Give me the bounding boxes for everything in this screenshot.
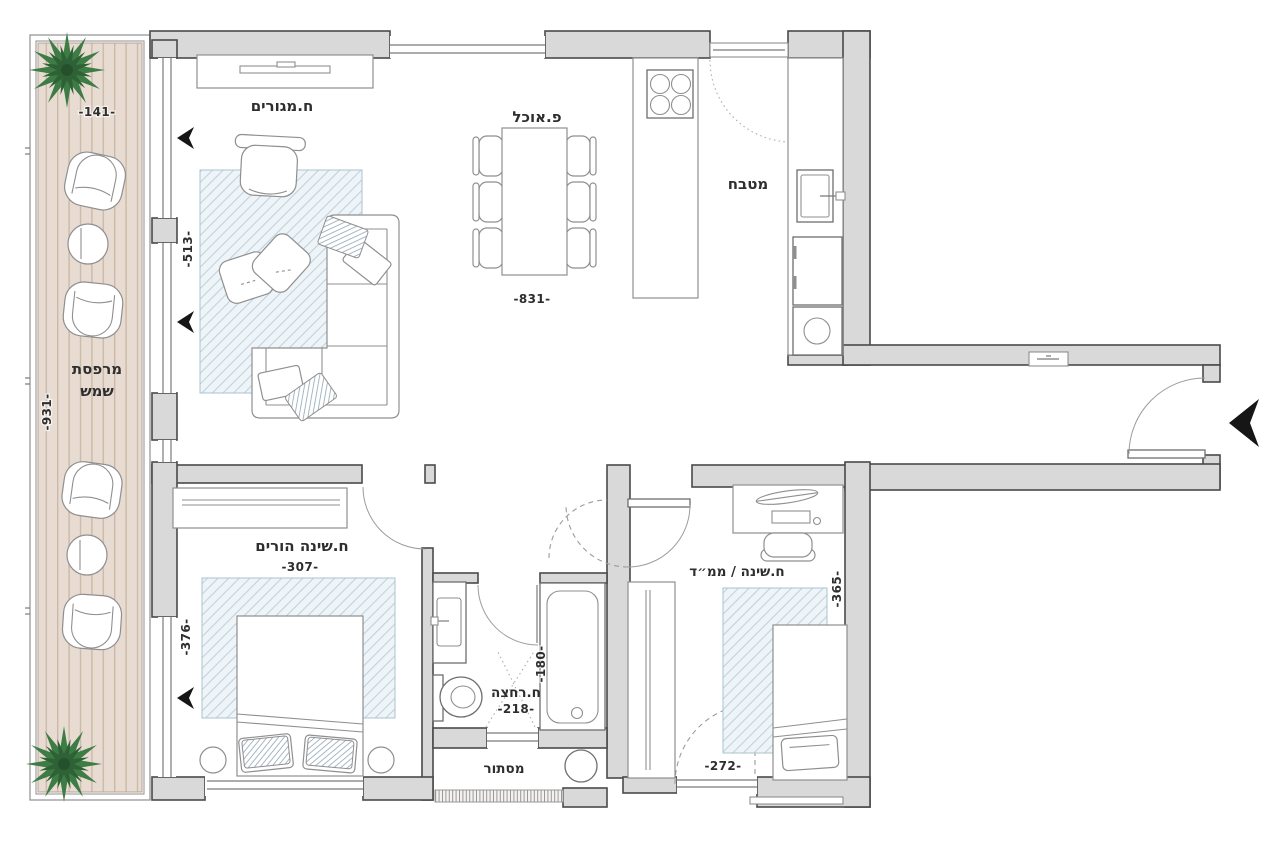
- entrance-door: [1128, 378, 1205, 458]
- washing-machine: [565, 750, 597, 782]
- living-armchair: [233, 134, 306, 198]
- nightstand-left: [200, 747, 226, 773]
- floor-plan-page: ח.מגורים -513- פ.אוכל -831- מטבח -141- מ…: [0, 0, 1267, 847]
- tv-console: [197, 55, 373, 88]
- master-window-arrow-icon: [177, 687, 194, 709]
- kitchen-door-swing: [710, 60, 792, 142]
- safe-room-label: ח.שינה / ממ״ד: [689, 564, 784, 580]
- balcony-table-bottom: [67, 535, 107, 575]
- master-window-dim: -376-: [179, 618, 193, 655]
- kitchen-label: מטבח: [728, 175, 769, 193]
- desk-chair: [761, 533, 815, 561]
- safe-room-wardrobe: [628, 582, 675, 778]
- exterior-sill: [750, 797, 843, 804]
- balcony-opening-arrow-top-icon: [177, 127, 194, 149]
- balcony-wall-ticks: [25, 148, 30, 614]
- hallway-door-swing: [549, 500, 607, 558]
- master-door-swing: [363, 487, 425, 549]
- dishwasher: [793, 237, 842, 305]
- master-width-dim: -307-: [281, 560, 318, 574]
- dining-chair: [566, 136, 596, 176]
- dining-width-dim: -831-: [513, 292, 550, 306]
- single-bed: [773, 625, 847, 780]
- bathroom-label: ח.רחצה: [491, 685, 541, 701]
- corridor-wall-niche: [1029, 352, 1068, 366]
- balcony-length-dim: -931-: [40, 393, 54, 430]
- balcony-label-line2: שמש: [80, 382, 114, 400]
- dining-chair: [566, 228, 596, 268]
- balcony-table-top: [68, 224, 108, 264]
- dining-table: [502, 128, 567, 275]
- cooktop: [647, 70, 693, 118]
- laundry-label: מסתור: [484, 761, 525, 777]
- kitchen-service-door: [710, 43, 788, 57]
- safe-room-width-dim: -272-: [704, 759, 741, 773]
- living-window-dim: -513-: [181, 230, 195, 267]
- vanity-sink: [431, 582, 466, 663]
- safe-room: [628, 485, 847, 804]
- dining-chair: [566, 182, 596, 222]
- safe-room-window: [677, 775, 757, 794]
- laundry-window: [487, 728, 538, 748]
- safe-room-depth-dim: -365-: [830, 570, 844, 607]
- nightstand-right: [368, 747, 394, 773]
- balcony-width-dim: -141-: [78, 105, 115, 119]
- living-top-window: [390, 36, 545, 58]
- bathroom-depth-dim: -180-: [534, 645, 548, 682]
- master-side-window: [158, 617, 176, 777]
- floor-plan-drawing: ח.מגורים -513- פ.אוכל -831- מטבח -141- מ…: [0, 0, 1267, 847]
- master-bedroom-label: ח.שינה הורים: [255, 537, 348, 555]
- desk: [733, 485, 843, 533]
- bathroom-width-dim: -218-: [497, 702, 534, 716]
- balcony-window-upper: [158, 58, 176, 218]
- dining-label: פ.אוכל: [512, 108, 561, 126]
- dining-chair: [473, 182, 503, 222]
- living-room-label: ח.מגורים: [251, 97, 314, 115]
- dining-chair: [473, 228, 503, 268]
- balcony-opening-arrow-mid-icon: [177, 311, 194, 333]
- toilet: [433, 675, 482, 721]
- entrance-arrow-icon: [1229, 399, 1259, 447]
- kitchen: [633, 58, 845, 355]
- bathroom-door: [478, 585, 538, 645]
- balcony-label-line1: מרפסת: [72, 360, 122, 378]
- dining-area: [473, 128, 596, 275]
- master-bottom-window: [205, 774, 363, 796]
- oven-appliance: [793, 307, 842, 355]
- master-bed: [237, 616, 363, 776]
- master-wardrobe: [173, 488, 347, 528]
- laundry-louver-grille: [435, 790, 563, 802]
- dining-chair: [473, 136, 503, 176]
- bathtub: [540, 583, 605, 730]
- master-bedroom: [173, 488, 395, 776]
